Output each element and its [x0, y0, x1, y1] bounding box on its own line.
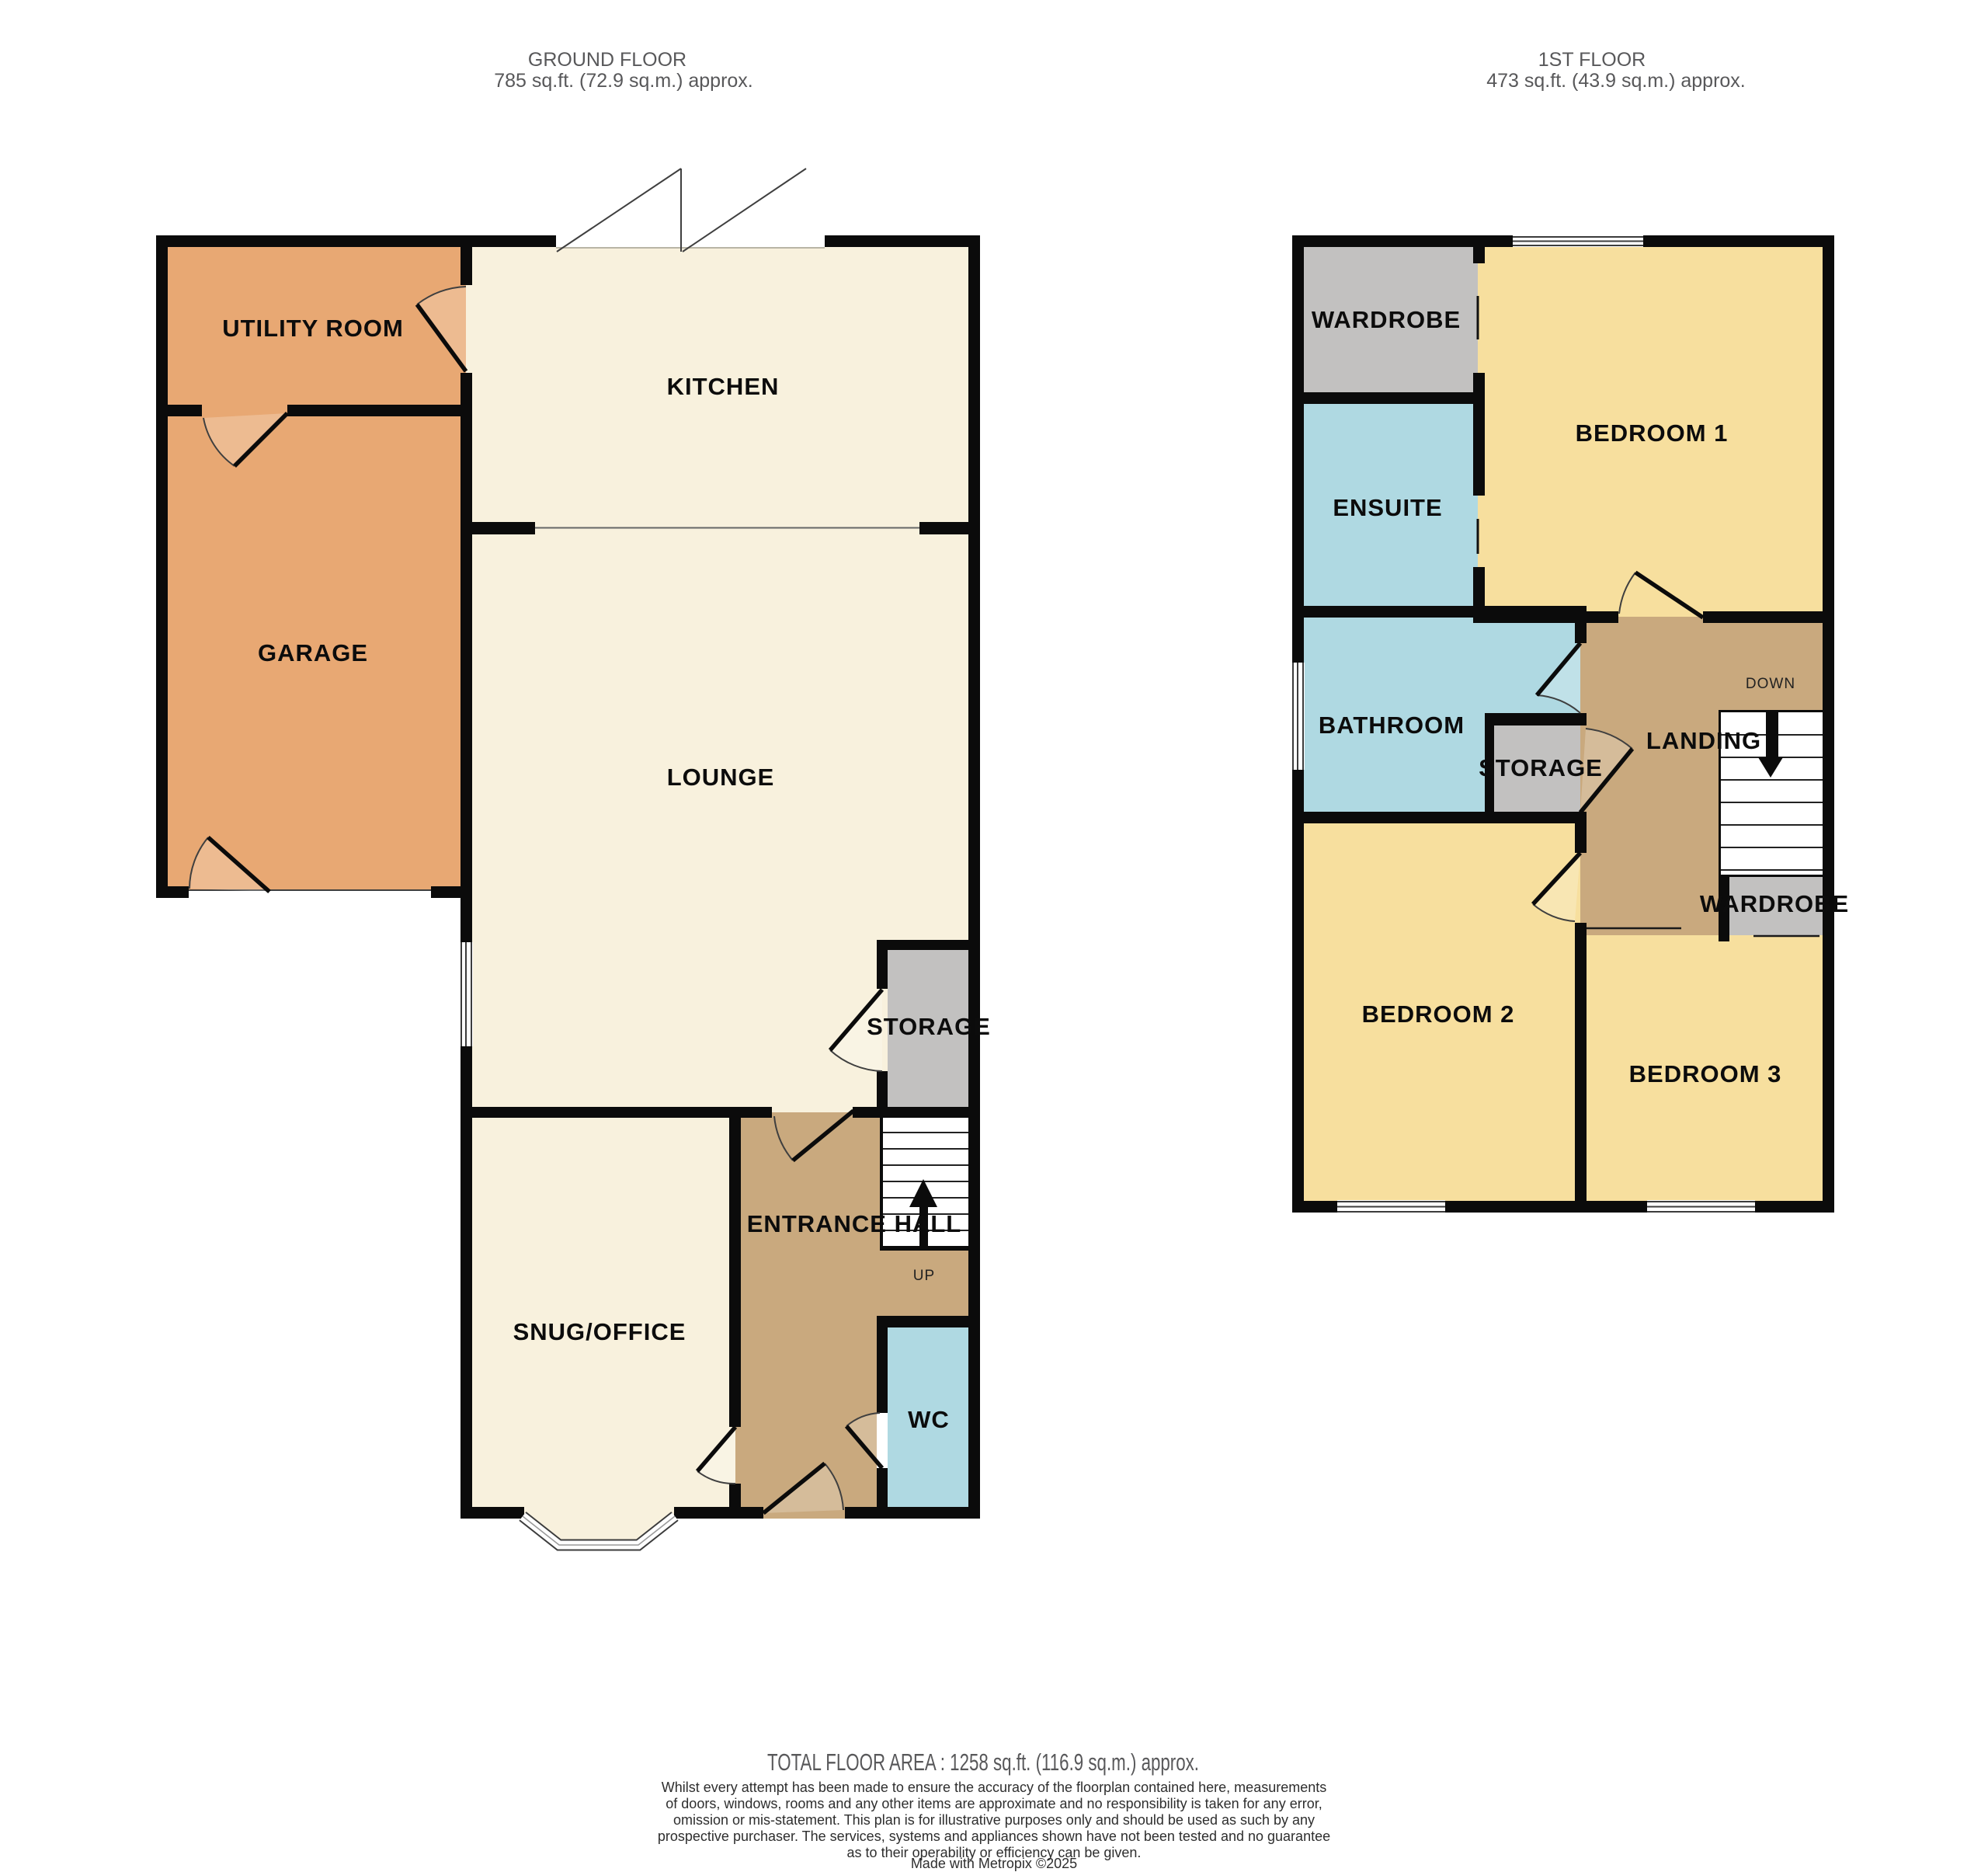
- svg-text:BEDROOM 2: BEDROOM 2: [1362, 1000, 1515, 1028]
- svg-text:UP: UP: [913, 1268, 935, 1284]
- svg-text:KITCHEN: KITCHEN: [667, 373, 780, 400]
- svg-text:BATHROOM: BATHROOM: [1319, 712, 1465, 739]
- svg-text:1ST FLOOR: 1ST FLOOR: [1538, 49, 1646, 71]
- svg-text:SNUG/OFFICE: SNUG/OFFICE: [513, 1318, 686, 1345]
- svg-text:Whilst every attempt has been: Whilst every attempt has been made to en…: [662, 1780, 1326, 1795]
- svg-text:GARAGE: GARAGE: [258, 639, 368, 666]
- svg-text:LOUNGE: LOUNGE: [667, 764, 775, 791]
- svg-text:omission or mis-statement. Thi: omission or mis-statement. This plan is …: [673, 1812, 1315, 1828]
- svg-text:DOWN: DOWN: [1746, 676, 1795, 692]
- svg-text:473 sq.ft. (43.9 sq.m.) approx: 473 sq.ft. (43.9 sq.m.) approx.: [1486, 70, 1746, 92]
- svg-text:785 sq.ft. (72.9 sq.m.) approx: 785 sq.ft. (72.9 sq.m.) approx.: [494, 70, 753, 92]
- svg-text:WARDROBE: WARDROBE: [1312, 306, 1461, 333]
- svg-text:BEDROOM 3: BEDROOM 3: [1629, 1060, 1782, 1087]
- svg-text:BEDROOM 1: BEDROOM 1: [1576, 419, 1729, 447]
- svg-text:prospective purchaser. The ser: prospective purchaser. The services, sys…: [658, 1829, 1330, 1844]
- svg-text:WARDROBE: WARDROBE: [1700, 890, 1849, 917]
- svg-text:STORAGE: STORAGE: [867, 1013, 991, 1040]
- svg-text:WC: WC: [908, 1406, 950, 1433]
- svg-text:ENSUITE: ENSUITE: [1333, 494, 1442, 521]
- svg-text:ENTRANCE HALL: ENTRANCE HALL: [747, 1210, 962, 1237]
- svg-text:UTILITY ROOM: UTILITY ROOM: [222, 315, 404, 342]
- svg-text:TOTAL FLOOR AREA : 1258 sq.ft.: TOTAL FLOOR AREA : 1258 sq.ft. (116.9 sq…: [767, 1748, 1199, 1776]
- svg-text:LANDING: LANDING: [1646, 727, 1761, 754]
- svg-text:of doors, windows, rooms and a: of doors, windows, rooms and any other i…: [666, 1796, 1322, 1811]
- svg-text:STORAGE: STORAGE: [1479, 754, 1603, 781]
- svg-text:Made with Metropix ©2025: Made with Metropix ©2025: [911, 1856, 1077, 1871]
- svg-text:GROUND FLOOR: GROUND FLOOR: [528, 49, 686, 71]
